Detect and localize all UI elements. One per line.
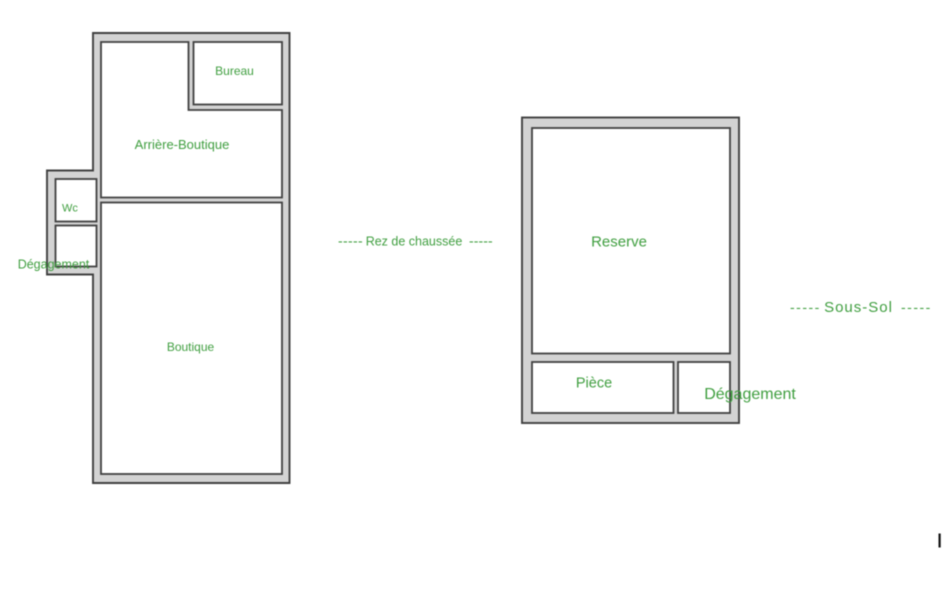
- svg-text:Boutique: Boutique: [167, 340, 215, 354]
- svg-text:Reserve: Reserve: [591, 234, 647, 251]
- svg-text:Bureau: Bureau: [215, 64, 254, 78]
- svg-text:Dégagement: Dégagement: [704, 386, 796, 403]
- svg-text:Rez de chaussée: Rez de chaussée: [366, 235, 463, 249]
- svg-text:Pièce: Pièce: [576, 376, 612, 392]
- svg-text:-----: -----: [469, 233, 493, 249]
- svg-text:-----: -----: [790, 299, 821, 315]
- svg-text:Wc: Wc: [62, 203, 78, 215]
- svg-text:-----: -----: [901, 299, 932, 315]
- svg-text:Sous-Sol: Sous-Sol: [824, 299, 893, 316]
- svg-text:Arrière-Boutique: Arrière-Boutique: [135, 137, 230, 152]
- svg-text:-----: -----: [338, 233, 363, 249]
- svg-text:Dégagement: Dégagement: [18, 258, 90, 272]
